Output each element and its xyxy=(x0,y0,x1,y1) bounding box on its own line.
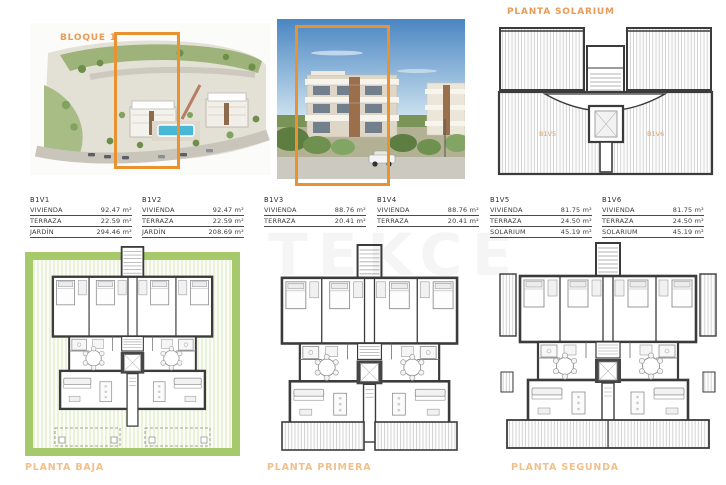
unit-id: B1V1 xyxy=(30,196,132,204)
side-terrace-right xyxy=(700,274,716,336)
unit-row-value: 24.50 m² xyxy=(673,218,704,225)
unit-id: B1V3 xyxy=(264,196,366,204)
unit-row-label: VIVIENDA xyxy=(377,207,410,214)
terrace-left xyxy=(282,422,364,450)
unit-row: VIVIENDA92.47 m² xyxy=(30,207,132,216)
side-balcony-left xyxy=(501,372,513,392)
unit-row-label: TERRAZA xyxy=(264,218,296,225)
unit-row: TERRAZA22.59 m² xyxy=(142,218,244,227)
unit-row-value: 22.59 m² xyxy=(213,218,244,225)
unit-id: B1V2 xyxy=(142,196,244,204)
unit-row-value: 24.50 m² xyxy=(561,218,592,225)
unit-row-value: 208.69 m² xyxy=(208,229,244,236)
unit-row: TERRAZA24.50 m² xyxy=(490,218,592,227)
unit-id: B1V5 xyxy=(490,196,592,204)
unit-row: JARDÍN208.69 m² xyxy=(142,229,244,238)
unit-row: SOLARIUM45.19 m² xyxy=(490,229,592,238)
unit-row-value: 92.47 m² xyxy=(213,207,244,214)
unit-row-label: VIVIENDA xyxy=(602,207,635,214)
unit-row-value: 92.47 m² xyxy=(101,207,132,214)
unit-row-value: 22.59 m² xyxy=(101,218,132,225)
unit-row-label: VIVIENDA xyxy=(30,207,63,214)
unit-row: JARDÍN294.46 m² xyxy=(30,229,132,238)
unit-row-value: 20.41 m² xyxy=(335,218,366,225)
unit-row: SOLARIUM45.19 m² xyxy=(602,229,704,238)
unit-table-b1v5: B1V5 VIVIENDA81.75 m² TERRAZA24.50 m² SO… xyxy=(490,196,592,240)
unit-row-value: 45.19 m² xyxy=(561,229,592,236)
unit-row: VIVIENDA92.47 m² xyxy=(142,207,244,216)
unit-row-value: 20.41 m² xyxy=(448,218,479,225)
unit-id: B1V6 xyxy=(602,196,704,204)
unit-row: VIVIENDA81.75 m² xyxy=(602,207,704,216)
planta-baja-label: PLANTA BAJA xyxy=(25,462,104,473)
elevator xyxy=(589,106,623,142)
unit-row-label: VIVIENDA xyxy=(490,207,523,214)
unit-row-value: 81.75 m² xyxy=(561,207,592,214)
unit-row-value: 294.46 m² xyxy=(96,229,132,236)
unit-table-b1v1: B1V1 VIVIENDA92.47 m² TERRAZA22.59 m² JA… xyxy=(30,196,132,240)
unit-row-label: TERRAZA xyxy=(602,218,634,225)
unit-table-b1v2: B1V2 VIVIENDA92.47 m² TERRAZA22.59 m² JA… xyxy=(142,196,244,240)
unit-row-label: TERRAZA xyxy=(490,218,522,225)
unit-row-label: VIVIENDA xyxy=(142,207,175,214)
unit-row: TERRAZA22.59 m² xyxy=(30,218,132,227)
render-highlight-box xyxy=(295,25,390,186)
unit-row: VIVIENDA88.76 m² xyxy=(377,207,479,216)
unit-row: TERRAZA20.41 m² xyxy=(264,218,366,227)
unit-table-b1v4: B1V4 VIVIENDA88.76 m² TERRAZA20.41 m² xyxy=(377,196,479,229)
roof-deck-right xyxy=(627,28,711,90)
unit-row-label: VIVIENDA xyxy=(264,207,297,214)
unit-table-b1v3: B1V3 VIVIENDA88.76 m² TERRAZA20.41 m² xyxy=(264,196,366,229)
planta-primera-label: PLANTA PRIMERA xyxy=(267,462,371,473)
cloud xyxy=(397,69,437,73)
roof-deck-left xyxy=(500,28,584,90)
bloque-label: BLOQUE 1 xyxy=(60,33,117,43)
unit-row: VIVIENDA88.76 m² xyxy=(264,207,366,216)
unit-row-value: 81.75 m² xyxy=(673,207,704,214)
unit-row-label: SOLARIUM xyxy=(602,229,638,236)
unit-row-label: TERRAZA xyxy=(142,218,174,225)
planta-segunda-drawing xyxy=(499,242,717,462)
aerial-highlight-box xyxy=(114,32,180,169)
solarium-unit-left-label: B1V5 xyxy=(539,130,556,138)
unit-row-value: 45.19 m² xyxy=(673,229,704,236)
planta-solarium-drawing: B1V5 B1V6 xyxy=(495,22,716,180)
unit-row-label: JARDÍN xyxy=(30,229,54,236)
unit-row: TERRAZA20.41 m² xyxy=(377,218,479,227)
solarium-title: PLANTA SOLARIUM xyxy=(507,7,615,17)
unit-row: TERRAZA24.50 m² xyxy=(602,218,704,227)
brochure-page: BLOQUE 1 xyxy=(0,0,726,485)
planta-primera-drawing xyxy=(262,242,477,462)
unit-row-value: 88.76 m² xyxy=(335,207,366,214)
unit-row-label: SOLARIUM xyxy=(490,229,526,236)
solarium-unit-right-label: B1V6 xyxy=(647,130,664,138)
side-balcony-right xyxy=(703,372,715,392)
planta-baja-drawing xyxy=(25,242,240,460)
unit-row-label: TERRAZA xyxy=(30,218,62,225)
unit-row-label: TERRAZA xyxy=(377,218,409,225)
planta-segunda-label: PLANTA SEGUNDA xyxy=(511,462,619,473)
unit-table-b1v6: B1V6 VIVIENDA81.75 m² TERRAZA24.50 m² SO… xyxy=(602,196,704,240)
unit-row-value: 88.76 m² xyxy=(448,207,479,214)
unit-id: B1V4 xyxy=(377,196,479,204)
terrace-right xyxy=(375,422,457,450)
unit-row-label: JARDÍN xyxy=(142,229,166,236)
building-block-2 xyxy=(206,93,248,127)
side-terrace-left xyxy=(500,274,516,336)
unit-row: VIVIENDA81.75 m² xyxy=(490,207,592,216)
